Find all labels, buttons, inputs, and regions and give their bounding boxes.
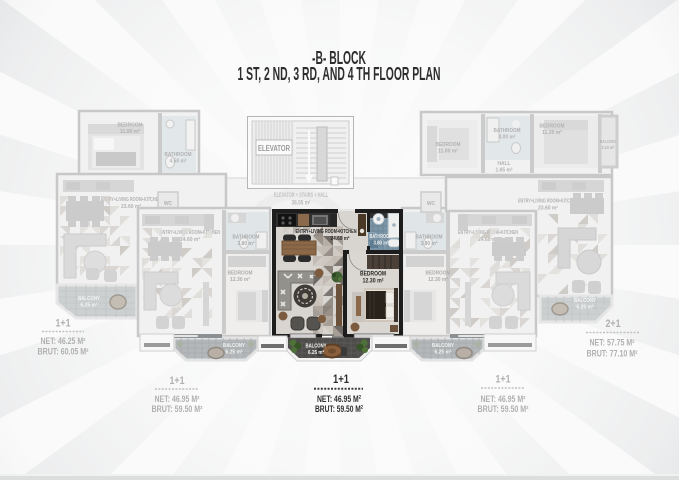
svg-text:BEDROOM: BEDROOM <box>540 124 565 130</box>
svg-text:BRUT: 77.10 M²: BRUT: 77.10 M² <box>587 349 638 359</box>
svg-text:1+1: 1+1 <box>333 374 349 386</box>
svg-text:BATHROOM: BATHROOM <box>233 235 260 241</box>
svg-text:2+1: 2+1 <box>606 318 621 330</box>
svg-text:BALCONY: BALCONY <box>600 139 616 144</box>
svg-text:ENTRY+LIVING ROOM+KITCHEN: ENTRY+LIVING ROOM+KITCHEN <box>518 199 578 205</box>
svg-text:6.25 m²: 6.25 m² <box>226 349 243 356</box>
svg-text:6.25 m²: 6.25 m² <box>577 304 594 311</box>
svg-text:6.25 m²: 6.25 m² <box>435 349 452 356</box>
svg-text:BALCONY: BALCONY <box>306 344 327 350</box>
svg-text:BEDROOM: BEDROOM <box>118 123 143 129</box>
svg-text:BEDROOM: BEDROOM <box>426 271 451 277</box>
svg-text:1 ST, 2 ND, 3 RD, AND 4 TH FLO: 1 ST, 2 ND, 3 RD, AND 4 TH FLOOR PLAN <box>238 64 441 84</box>
svg-text:WC: WC <box>427 201 436 207</box>
svg-text:23.60 m²: 23.60 m² <box>538 205 558 212</box>
svg-text:BALCONY: BALCONY <box>78 296 100 302</box>
svg-text:BALCONY: BALCONY <box>574 298 596 304</box>
svg-text:BRUT: 60.05 M²: BRUT: 60.05 M² <box>38 347 89 357</box>
svg-text:HALL: HALL <box>498 161 512 167</box>
svg-text:NET: 46.95 M²: NET: 46.95 M² <box>481 394 526 404</box>
svg-text:3.80 m²: 3.80 m² <box>238 240 255 247</box>
svg-text:BATHROOM: BATHROOM <box>416 235 443 241</box>
svg-text:ENTRY+LIVING ROOM+KITCHEN: ENTRY+LIVING ROOM+KITCHEN <box>101 197 161 203</box>
svg-text:12.30 m²: 12.30 m² <box>363 278 384 285</box>
svg-text:NET: 57.75 M²: NET: 57.75 M² <box>590 338 635 348</box>
svg-text:BRUT: 59.50 M²: BRUT: 59.50 M² <box>478 404 529 414</box>
svg-text:24.60 m²: 24.60 m² <box>180 236 200 243</box>
svg-text:BRUT: 59.50 M²: BRUT: 59.50 M² <box>315 404 363 415</box>
svg-text:WC: WC <box>164 201 173 207</box>
svg-text:11.30 m²: 11.30 m² <box>542 129 562 136</box>
svg-text:1+1: 1+1 <box>170 375 185 387</box>
svg-text:ELEVATOR: ELEVATOR <box>258 144 290 153</box>
svg-text:NET: 46.95 M²: NET: 46.95 M² <box>155 394 200 404</box>
svg-text:4.50 m²: 4.50 m² <box>170 158 187 165</box>
svg-text:4.00 m²: 4.00 m² <box>499 134 516 141</box>
svg-text:ENTRY+LIVING ROOM+KITCHEN: ENTRY+LIVING ROOM+KITCHEN <box>296 229 357 235</box>
svg-text:1+1: 1+1 <box>496 374 511 386</box>
svg-text:BATHROOM: BATHROOM <box>494 128 521 134</box>
svg-text:BALCONY: BALCONY <box>432 343 454 349</box>
svg-text:11.00 m²: 11.00 m² <box>438 148 458 155</box>
svg-text:1.65 m²: 1.65 m² <box>496 167 513 174</box>
svg-text:BEDROOM: BEDROOM <box>360 272 386 278</box>
svg-text:3.10 m²: 3.10 m² <box>602 145 615 150</box>
svg-text:24.60 m²: 24.60 m² <box>331 235 350 242</box>
svg-text:1+1: 1+1 <box>56 318 71 330</box>
svg-text:BEDROOM: BEDROOM <box>228 271 253 277</box>
svg-text:3.80 m²: 3.80 m² <box>374 240 389 247</box>
svg-text:11.90 m²: 11.90 m² <box>120 128 140 135</box>
svg-text:6.25 m²: 6.25 m² <box>308 349 324 356</box>
svg-text:BEDROOM: BEDROOM <box>436 142 461 148</box>
svg-text:3.80 m²: 3.80 m² <box>421 240 438 247</box>
svg-text:BATHROOM: BATHROOM <box>165 152 192 158</box>
svg-text:BRUT: 59.50 M²: BRUT: 59.50 M² <box>152 404 203 414</box>
svg-text:NET: 46.25 M²: NET: 46.25 M² <box>41 336 86 346</box>
svg-text:BALCONY: BALCONY <box>223 343 245 349</box>
svg-text:12.30 m²: 12.30 m² <box>428 276 448 283</box>
svg-text:6.25 m²: 6.25 m² <box>81 302 98 309</box>
svg-text:12.30 m²: 12.30 m² <box>230 276 250 283</box>
